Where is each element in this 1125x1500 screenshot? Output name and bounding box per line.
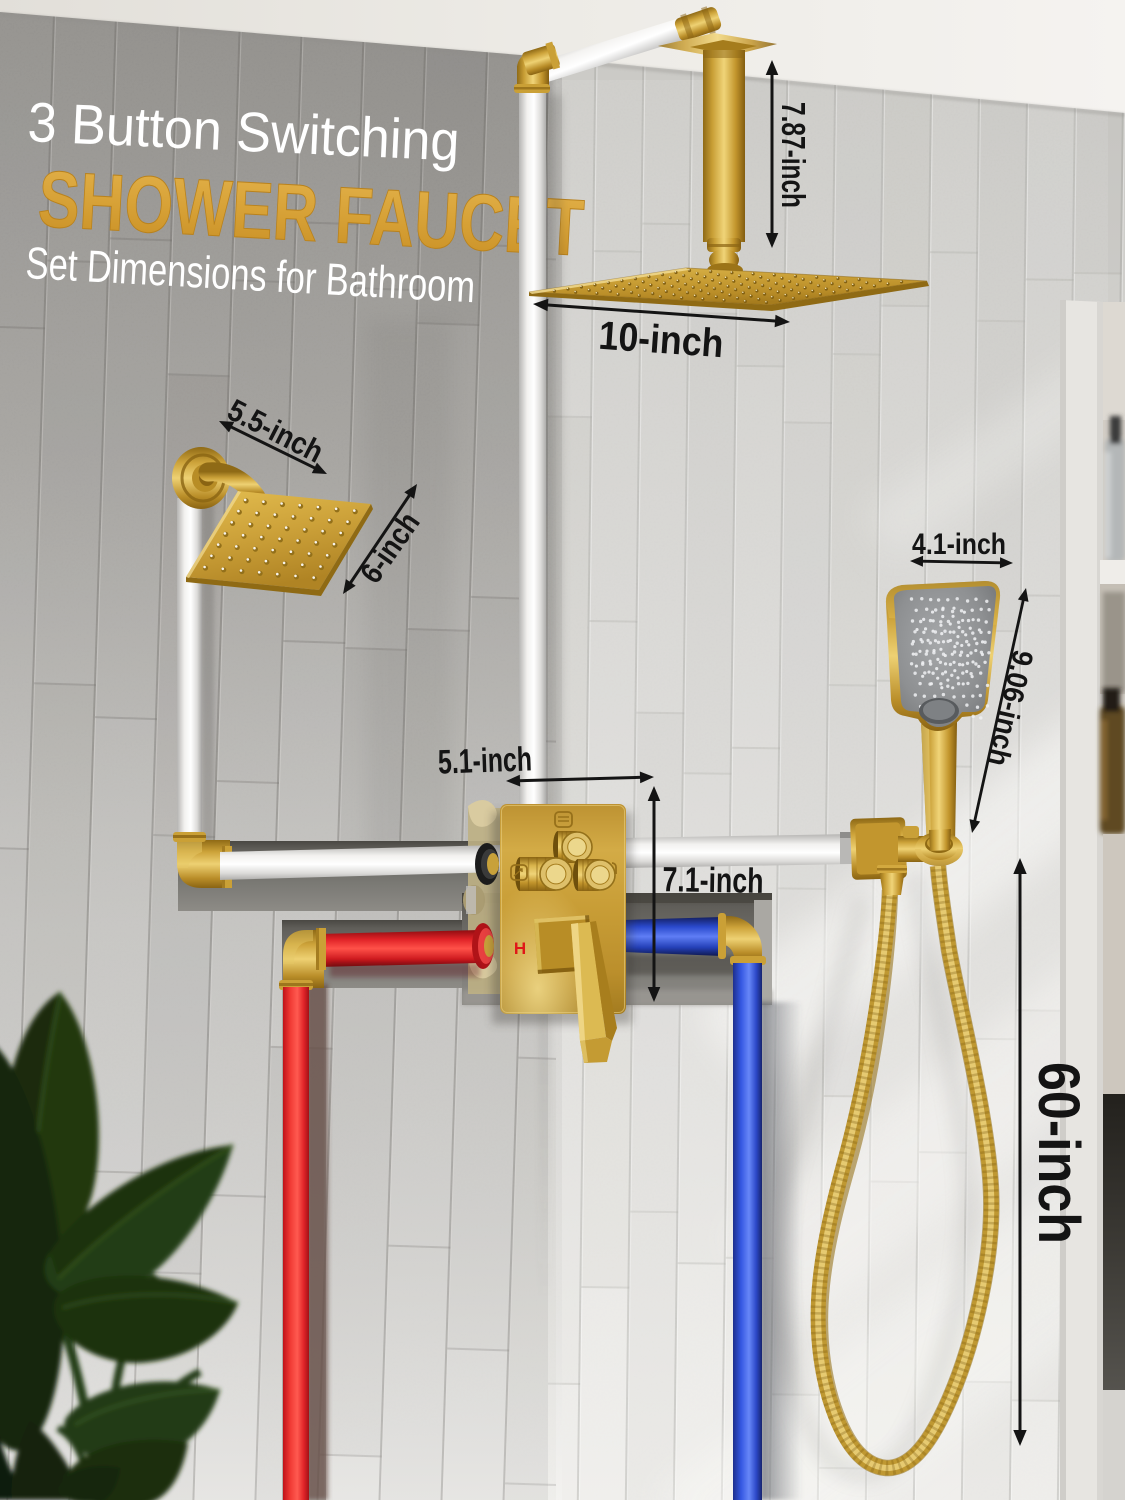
svg-text:60-inch: 60-inch xyxy=(1026,1062,1091,1244)
svg-text:7.87-inch: 7.87-inch xyxy=(775,102,812,208)
svg-text:10-inch: 10-inch xyxy=(597,314,725,367)
svg-text:4.1-inch: 4.1-inch xyxy=(912,528,1006,561)
svg-text:7.1-inch: 7.1-inch xyxy=(662,860,764,901)
svg-text:H: H xyxy=(514,939,526,958)
svg-text:5.1-inch: 5.1-inch xyxy=(437,740,532,781)
